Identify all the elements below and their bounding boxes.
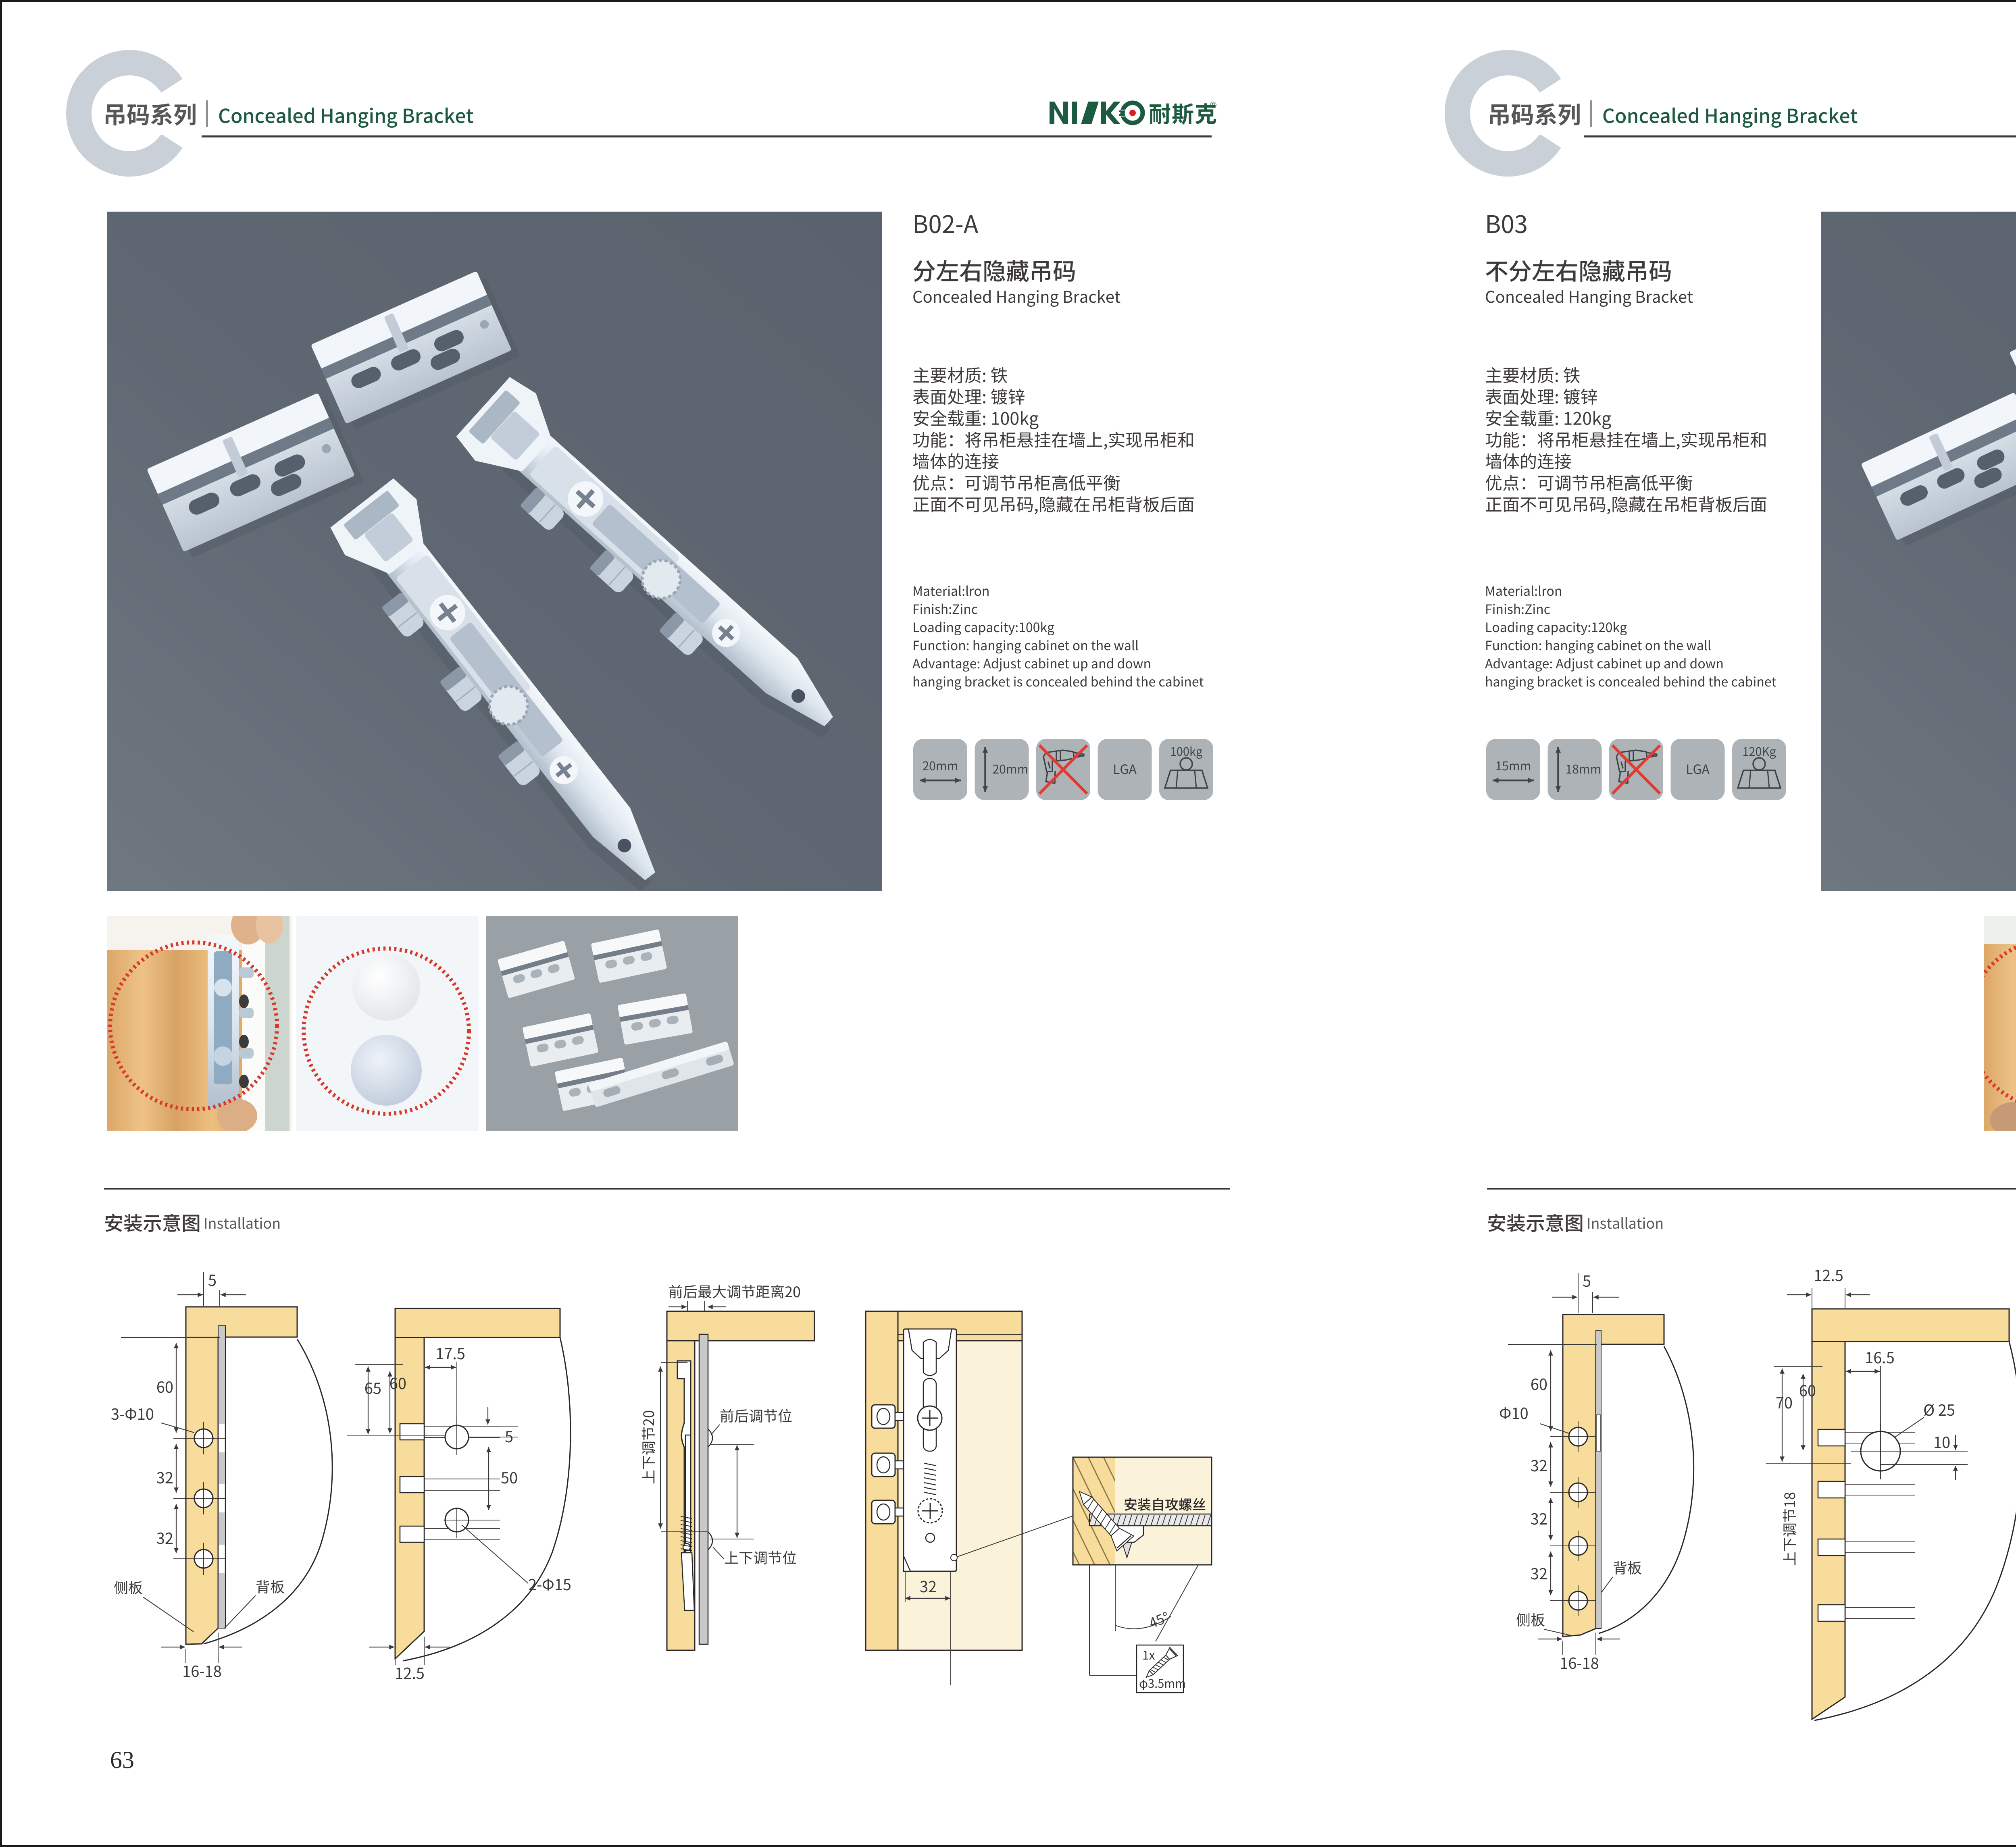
svg-text:®: ® — [1210, 100, 1216, 110]
svg-text:63: 63 — [110, 1747, 134, 1773]
